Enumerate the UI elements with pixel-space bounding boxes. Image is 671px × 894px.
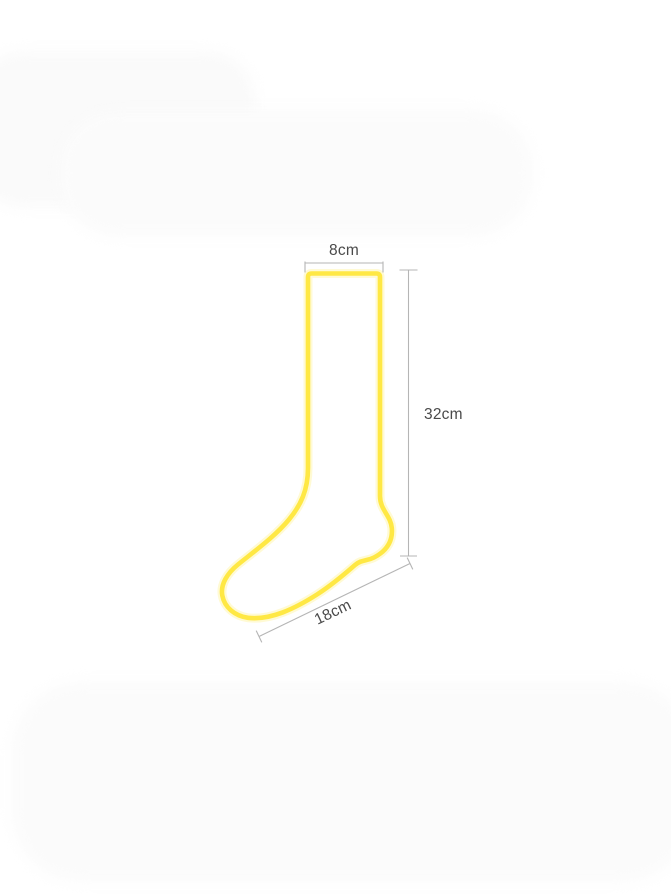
sock-outline-svg	[0, 0, 671, 894]
sock-outline-stroke	[222, 274, 392, 619]
cuff-width-label: 8cm	[314, 242, 374, 259]
leg-height-label: 32cm	[424, 406, 484, 423]
height-dimension-line	[400, 270, 418, 556]
length-dimension-line	[256, 558, 413, 643]
sock-size-diagram: 8cm 32cm 18cm	[0, 0, 671, 894]
sock-outline	[222, 274, 392, 619]
